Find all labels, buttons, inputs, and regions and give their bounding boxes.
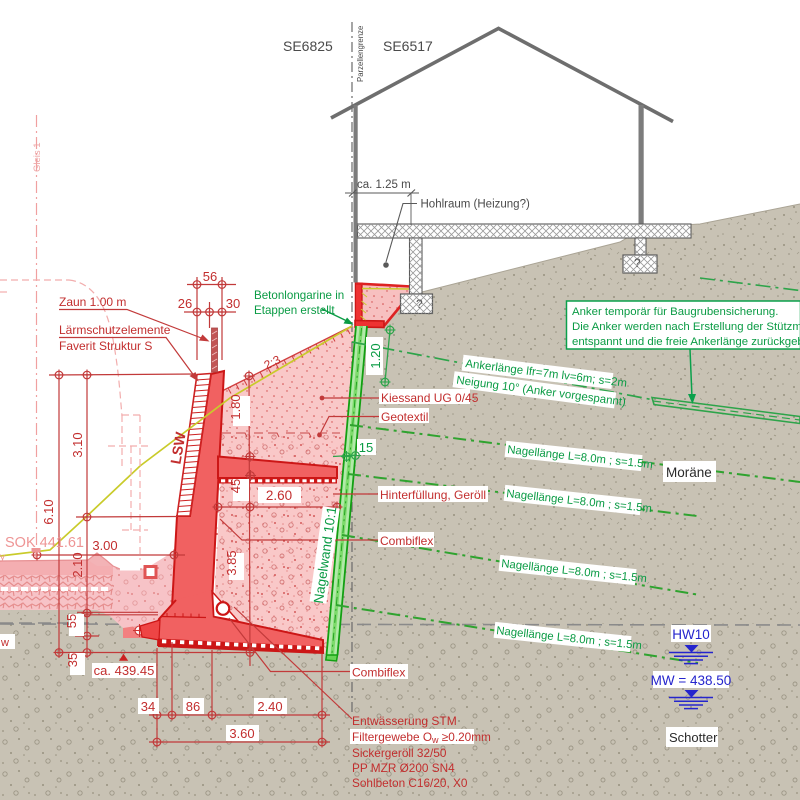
svg-text:Combiflex: Combiflex	[380, 534, 433, 548]
svg-text:SE6825: SE6825	[283, 38, 333, 54]
svg-text:Entwässerung STM: Entwässerung STM	[352, 714, 457, 728]
svg-text:2.60: 2.60	[266, 488, 292, 503]
svg-text:Combiflex: Combiflex	[352, 666, 405, 680]
svg-text:Sickergeröll 32/50: Sickergeröll 32/50	[352, 746, 447, 760]
svg-text:Anker temporär für Baugrubensi: Anker temporär für Baugrubensicherung.	[572, 306, 778, 318]
svg-text:Kiessand UG 0/45: Kiessand UG 0/45	[381, 391, 479, 405]
svg-text:30: 30	[226, 296, 240, 311]
svg-text:55: 55	[64, 614, 79, 628]
svg-text:?: ?	[416, 297, 423, 311]
svg-text:26: 26	[178, 296, 192, 311]
svg-text:3.85: 3.85	[224, 550, 239, 575]
svg-text:Hohlraum (Heizung?): Hohlraum (Heizung?)	[421, 199, 530, 211]
svg-text:Sohlbeton C16/20, X0: Sohlbeton C16/20, X0	[352, 776, 468, 790]
svg-text:2.10: 2.10	[70, 552, 85, 577]
svg-text:2.40: 2.40	[257, 699, 282, 714]
svg-text:entspannt und die freie Ankerl: entspannt und die freie Ankerlänge zurüc…	[572, 336, 800, 348]
svg-text:?: ?	[634, 256, 641, 270]
svg-text:MW = 438.50: MW = 438.50	[651, 673, 732, 688]
svg-text:Etappen erstellt: Etappen erstellt	[254, 304, 335, 317]
svg-text:Lärmschutzelemente: Lärmschutzelemente	[59, 323, 171, 337]
svg-text:Zaun 1.00 m: Zaun 1.00 m	[59, 295, 126, 309]
svg-text:y: y	[0, 552, 5, 563]
svg-text:Geotextil: Geotextil	[381, 410, 428, 424]
svg-text:Schotter: Schotter	[669, 730, 718, 745]
svg-text:Hinterfüllung, Geröll: Hinterfüllung, Geröll	[380, 488, 486, 502]
svg-text:ca. 1.25 m: ca. 1.25 m	[357, 179, 411, 191]
svg-text:PP MZR Ø200 SN4: PP MZR Ø200 SN4	[352, 761, 455, 775]
svg-text:3.10: 3.10	[70, 432, 85, 457]
svg-text:1.80: 1.80	[228, 394, 243, 419]
svg-text:86: 86	[186, 699, 200, 714]
svg-text:SE6517: SE6517	[383, 38, 433, 54]
svg-text:Betonlongarine in: Betonlongarine in	[254, 289, 344, 302]
svg-text:Faverit Struktur S: Faverit Struktur S	[59, 339, 152, 353]
svg-text:3.00: 3.00	[92, 538, 117, 553]
svg-text:1.20: 1.20	[368, 343, 383, 368]
svg-text:56: 56	[203, 269, 217, 284]
svg-text:w: w	[0, 637, 9, 649]
svg-text:6.10: 6.10	[41, 499, 56, 524]
svg-text:34: 34	[141, 699, 155, 714]
svg-text:45: 45	[228, 479, 243, 493]
svg-text:Parzellengrenze: Parzellengrenze	[356, 26, 365, 82]
svg-text:15: 15	[359, 440, 373, 455]
svg-text:3.60: 3.60	[229, 726, 254, 741]
svg-text:Die Anker werden nach Erstellu: Die Anker werden nach Erstellung der Stü…	[572, 321, 800, 333]
svg-text:SOK 441.61: SOK 441.61	[5, 535, 84, 551]
svg-text:Gleis 1: Gleis 1	[32, 142, 43, 172]
svg-text:Moräne: Moräne	[666, 465, 712, 480]
svg-text:Filtergewebe Ow ≥0.20mm: Filtergewebe Ow ≥0.20mm	[352, 730, 491, 745]
svg-text:HW10: HW10	[672, 627, 710, 642]
svg-text:35: 35	[65, 653, 80, 667]
svg-text:ca. 439.45: ca. 439.45	[94, 663, 155, 678]
